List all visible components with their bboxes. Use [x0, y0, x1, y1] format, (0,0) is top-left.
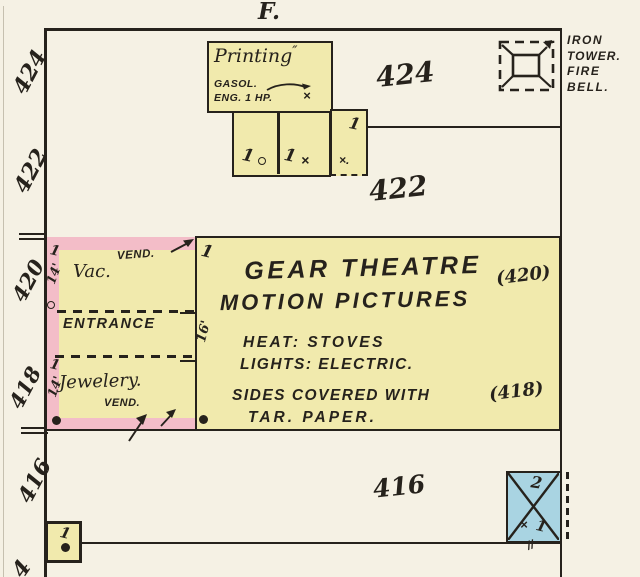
one-story-mark: 1 — [240, 145, 256, 167]
heat-note: HEAT: STOVES — [243, 334, 385, 352]
one-story-mark: 1 — [282, 145, 298, 167]
street-number-partial: 4 — [7, 555, 37, 577]
dot-mark — [199, 415, 208, 424]
iron-tower-fire-bell-icon — [497, 38, 559, 94]
lot-number-424: 424 — [374, 55, 436, 94]
entrance-label: ENTRANCE — [63, 316, 156, 332]
survey-tick — [19, 233, 47, 235]
survey-tick — [19, 238, 47, 240]
entrance-dashed-wall — [55, 355, 194, 358]
fire-bell-line: IRON — [567, 33, 621, 49]
one-story-mark: 1 — [347, 113, 362, 134]
lot-line-422 — [366, 126, 561, 128]
gasoline-note: GASOL. — [214, 78, 257, 90]
circle-mark — [47, 301, 55, 309]
dimension-tick — [180, 312, 196, 314]
street-curb-line — [3, 6, 4, 577]
engine-note: ENG. 1 HP. — [214, 92, 273, 104]
jewelery-label: Jewelery. — [59, 370, 142, 394]
dot-mark — [52, 416, 61, 425]
entrance-dashed-wall — [57, 310, 194, 313]
vend-label: VEND. — [104, 397, 140, 409]
printing-label: Printing″ — [214, 44, 298, 67]
lot-number-416: 416 — [372, 469, 427, 503]
rear-lot-line-416 — [79, 542, 561, 544]
sides-note: SIDES COVERED WITH — [232, 387, 430, 405]
lights-note: LIGHTS: ELECTRIC. — [240, 356, 414, 374]
small-shed-building: 1 — [45, 521, 82, 563]
x-mark: × — [303, 88, 311, 103]
theatre-subtitle: MOTION PICTURES — [205, 286, 485, 317]
fire-bell-line: BELL. — [567, 80, 621, 96]
circle-mark — [258, 157, 266, 165]
street-label: F. — [258, 0, 280, 25]
fire-bell-line: FIRE — [567, 64, 621, 80]
lot-number-422: 422 — [367, 169, 429, 208]
front-shops-bottom-wall — [45, 429, 197, 432]
street-number-418: 418 — [4, 362, 47, 412]
dot-mark — [61, 543, 70, 552]
fire-bell-caption: IRON TOWER. FIRE BELL. — [567, 33, 621, 95]
vacant-label: Vac. — [73, 261, 111, 282]
x-mark: × — [301, 152, 309, 168]
printing-title-text: Printing — [214, 45, 292, 67]
printing-flourish: ″ — [292, 44, 297, 60]
arrow-icon — [169, 237, 195, 254]
printing-building: Printing″ GASOL. ENG. 1 HP. × — [207, 41, 333, 113]
party-wall — [277, 113, 280, 174]
side-shed-building: 1 ×. — [330, 109, 368, 176]
lot-dashed-line — [566, 472, 569, 544]
x-mark: × — [520, 517, 528, 532]
block-top-border — [45, 28, 562, 31]
fire-bell-line: TOWER. — [567, 49, 621, 65]
dimension-tick — [180, 360, 195, 362]
x-mark: ×. — [339, 153, 349, 167]
tar-paper-note: TAR. PAPER. — [248, 409, 377, 427]
arrow-icon — [158, 407, 179, 428]
rear-shed-building: 1 1 × — [232, 111, 331, 177]
survey-tick — [21, 427, 48, 429]
arrow-icon — [124, 412, 151, 443]
crossed-outbuilding: 2 × 1 — [506, 471, 562, 543]
survey-tick — [21, 432, 48, 434]
one-story-mark: 1 — [58, 523, 72, 543]
sanborn-map-canvas: F. 424 422 420 418 416 4 Printing″ GASOL… — [0, 0, 640, 577]
street-number-416: 416 — [13, 455, 58, 508]
